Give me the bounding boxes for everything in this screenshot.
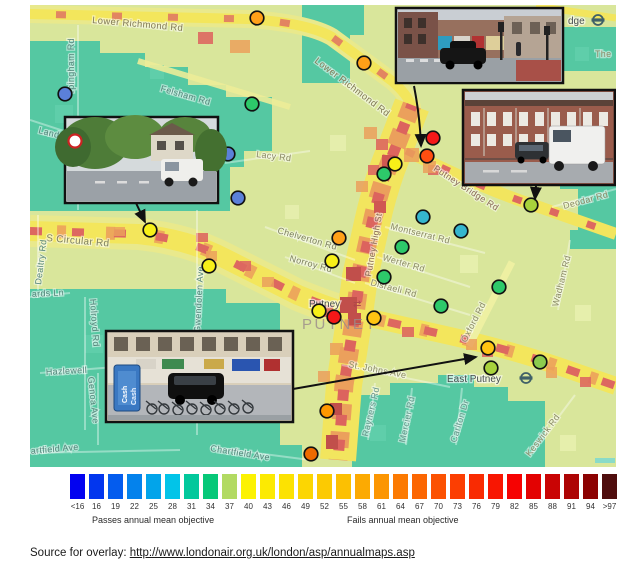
monitoring-site-dot [492,280,506,294]
street-photo-junction [55,115,227,203]
monitoring-site-dot [357,56,371,70]
legend-swatch [412,474,427,499]
legend-tick-label: 79 [491,502,500,511]
legend-stop: 61 [372,474,391,511]
legend-swatch [317,474,332,499]
legend-tick-label: 40 [244,502,253,511]
monitoring-site-dot [202,259,216,273]
legend-stop: 64 [391,474,410,511]
legend-swatch [298,474,313,499]
monitoring-site-dot [533,355,547,369]
legend-tick-label: >97 [603,502,617,511]
legend-swatch [89,474,104,499]
monitoring-site-dot [434,299,448,313]
legend-swatch [203,474,218,499]
legend-tick-label: 37 [225,502,234,511]
legend-stop: 85 [524,474,543,511]
legend-stop: 31 [182,474,201,511]
legend-stop: 67 [410,474,429,511]
legend-tick-label: 73 [453,502,462,511]
legend-swatch [165,474,180,499]
legend-stop: 25 [144,474,163,511]
legend-stop: 88 [543,474,562,511]
monitoring-site-dot [312,304,326,318]
legend-tick-label: 67 [415,502,424,511]
monitoring-site-dot [143,223,157,237]
legend-tick-label: 46 [282,502,291,511]
monitoring-site-dot [325,254,339,268]
legend-stop: 52 [315,474,334,511]
legend-swatch [526,474,541,499]
legend-swatch [431,474,446,499]
legend-stop: 91 [562,474,581,511]
source-prefix: Source for overlay: [30,547,130,559]
legend-tick-label: 19 [111,502,120,511]
pedestrian-shape [516,42,521,56]
monitoring-site-dot [377,270,391,284]
legend-swatch [488,474,503,499]
monitoring-site-dot [454,224,468,238]
legend-swatch [108,474,123,499]
legend-tick-label: 28 [168,502,177,511]
legend-swatch [583,474,598,499]
street-photo-terraces [463,90,615,185]
cash-sign-text: Cash [131,388,138,405]
station-label: East Putney [447,374,501,385]
map-canvas: PUTNEY Lower Richmond RdLower Richmond R… [30,5,616,467]
legend-swatch [355,474,370,499]
legend-stop: <16 [68,474,87,511]
legend-tick-label: 64 [396,502,405,511]
monitoring-site-dot [231,191,245,205]
legend-stop: 46 [277,474,296,511]
road-sign-shape [69,135,82,148]
legend-tick-label: 31 [187,502,196,511]
street-photo-parade: Cash Cash [106,331,293,422]
legend-tick-label: 85 [529,502,538,511]
cash-sign-text: Cash [122,386,129,403]
legend-tick-label: 49 [301,502,310,511]
legend-tick-label: 91 [567,502,576,511]
legend-swatch [260,474,275,499]
legend-fails-label: Fails annual mean objective [347,515,459,525]
monitoring-site-dot [320,404,334,418]
legend-tick-label: 82 [510,502,519,511]
legend-tick-label: 76 [472,502,481,511]
legend-stop: 94 [581,474,600,511]
legend-stop: >97 [600,474,619,511]
legend-tick-label: 34 [206,502,215,511]
underground-roundel-icon [592,18,605,21]
legend-stop: 37 [220,474,239,511]
monitoring-site-dot [332,231,346,245]
legend-passes-label: Passes annual mean objective [92,515,214,525]
road-label: ards Ln [32,287,65,299]
legend-stop: 40 [239,474,258,511]
legend-stop: 22 [125,474,144,511]
monitoring-site-dot [484,361,498,375]
legend-swatch [279,474,294,499]
national-rail-icon: ⇄ [353,299,361,310]
road-label: rpingham Rd [66,38,76,93]
legend-swatch [507,474,522,499]
legend-swatch [564,474,579,499]
legend-swatch [374,474,389,499]
monitoring-site-dot [388,157,402,171]
legend-swatch [545,474,560,499]
legend-tick-label: 61 [377,502,386,511]
legend-swatch [184,474,199,499]
monitoring-site-dot [416,210,430,224]
source-line: Source for overlay: http://www.londonair… [30,547,415,559]
legend-swatch [393,474,408,499]
legend-stop: 19 [106,474,125,511]
map: PUTNEY Lower Richmond RdLower Richmond R… [30,5,616,467]
legend-stop: 82 [505,474,524,511]
legend-swatch [602,474,617,499]
street-photo-crossing [396,8,563,83]
legend-tick-label: 43 [263,502,272,511]
legend-stop: 28 [163,474,182,511]
legend-tick-label: 58 [358,502,367,511]
legend: <161619222528313437404346495255586164677… [0,470,630,532]
legend-tick-label: 52 [320,502,329,511]
legend-tick-label: 70 [434,502,443,511]
legend-swatch [241,474,256,499]
legend-tick-label: 55 [339,502,348,511]
legend-swatch [70,474,85,499]
underground-roundel-icon [520,376,533,379]
legend-tick-label: <16 [71,502,85,511]
monitoring-site-dot [250,11,264,25]
legend-tick-label: 88 [548,502,557,511]
legend-swatch [146,474,161,499]
legend-tick-label: 22 [130,502,139,511]
road-label: The [595,49,611,59]
legend-tick-label: 16 [92,502,101,511]
monitoring-site-dot [245,97,259,111]
white-truck-shape [549,126,605,171]
monitoring-site-dot [327,310,341,324]
legend-swatch [127,474,142,499]
legend-stop: 70 [429,474,448,511]
legend-stop: 55 [334,474,353,511]
legend-stop: 34 [201,474,220,511]
legend-stop: 73 [448,474,467,511]
monitoring-site-dot [377,167,391,181]
callout-arrow [535,186,536,199]
cash-kiosk-shape: Cash Cash [114,365,140,411]
monitoring-site-dot [395,240,409,254]
monitoring-site-dot [367,311,381,325]
legend-swatch [336,474,351,499]
legend-stop: 76 [467,474,486,511]
legend-stop: 58 [353,474,372,511]
monitoring-site-dot [481,341,495,355]
legend-tick-label: 94 [586,502,595,511]
legend-swatch [222,474,237,499]
monitoring-site-dot [524,198,538,212]
legend-stop: 79 [486,474,505,511]
monitoring-site-dot [304,447,318,461]
monitoring-site-dot [58,87,72,101]
legend-color-scale: <161619222528313437404346495255586164677… [68,474,619,511]
legend-stop: 16 [87,474,106,511]
legend-swatch [469,474,484,499]
legend-stop: 49 [296,474,315,511]
air-quality-map-page: PUTNEY Lower Richmond RdLower Richmond R… [0,0,630,572]
legend-tick-label: 25 [149,502,158,511]
monitoring-site-dot [426,131,440,145]
monitoring-site-dot [420,149,434,163]
legend-swatch [450,474,465,499]
station-label: dge [568,16,585,27]
source-link[interactable]: http://www.londonair.org.uk/london/asp/a… [130,547,415,559]
legend-stop: 43 [258,474,277,511]
